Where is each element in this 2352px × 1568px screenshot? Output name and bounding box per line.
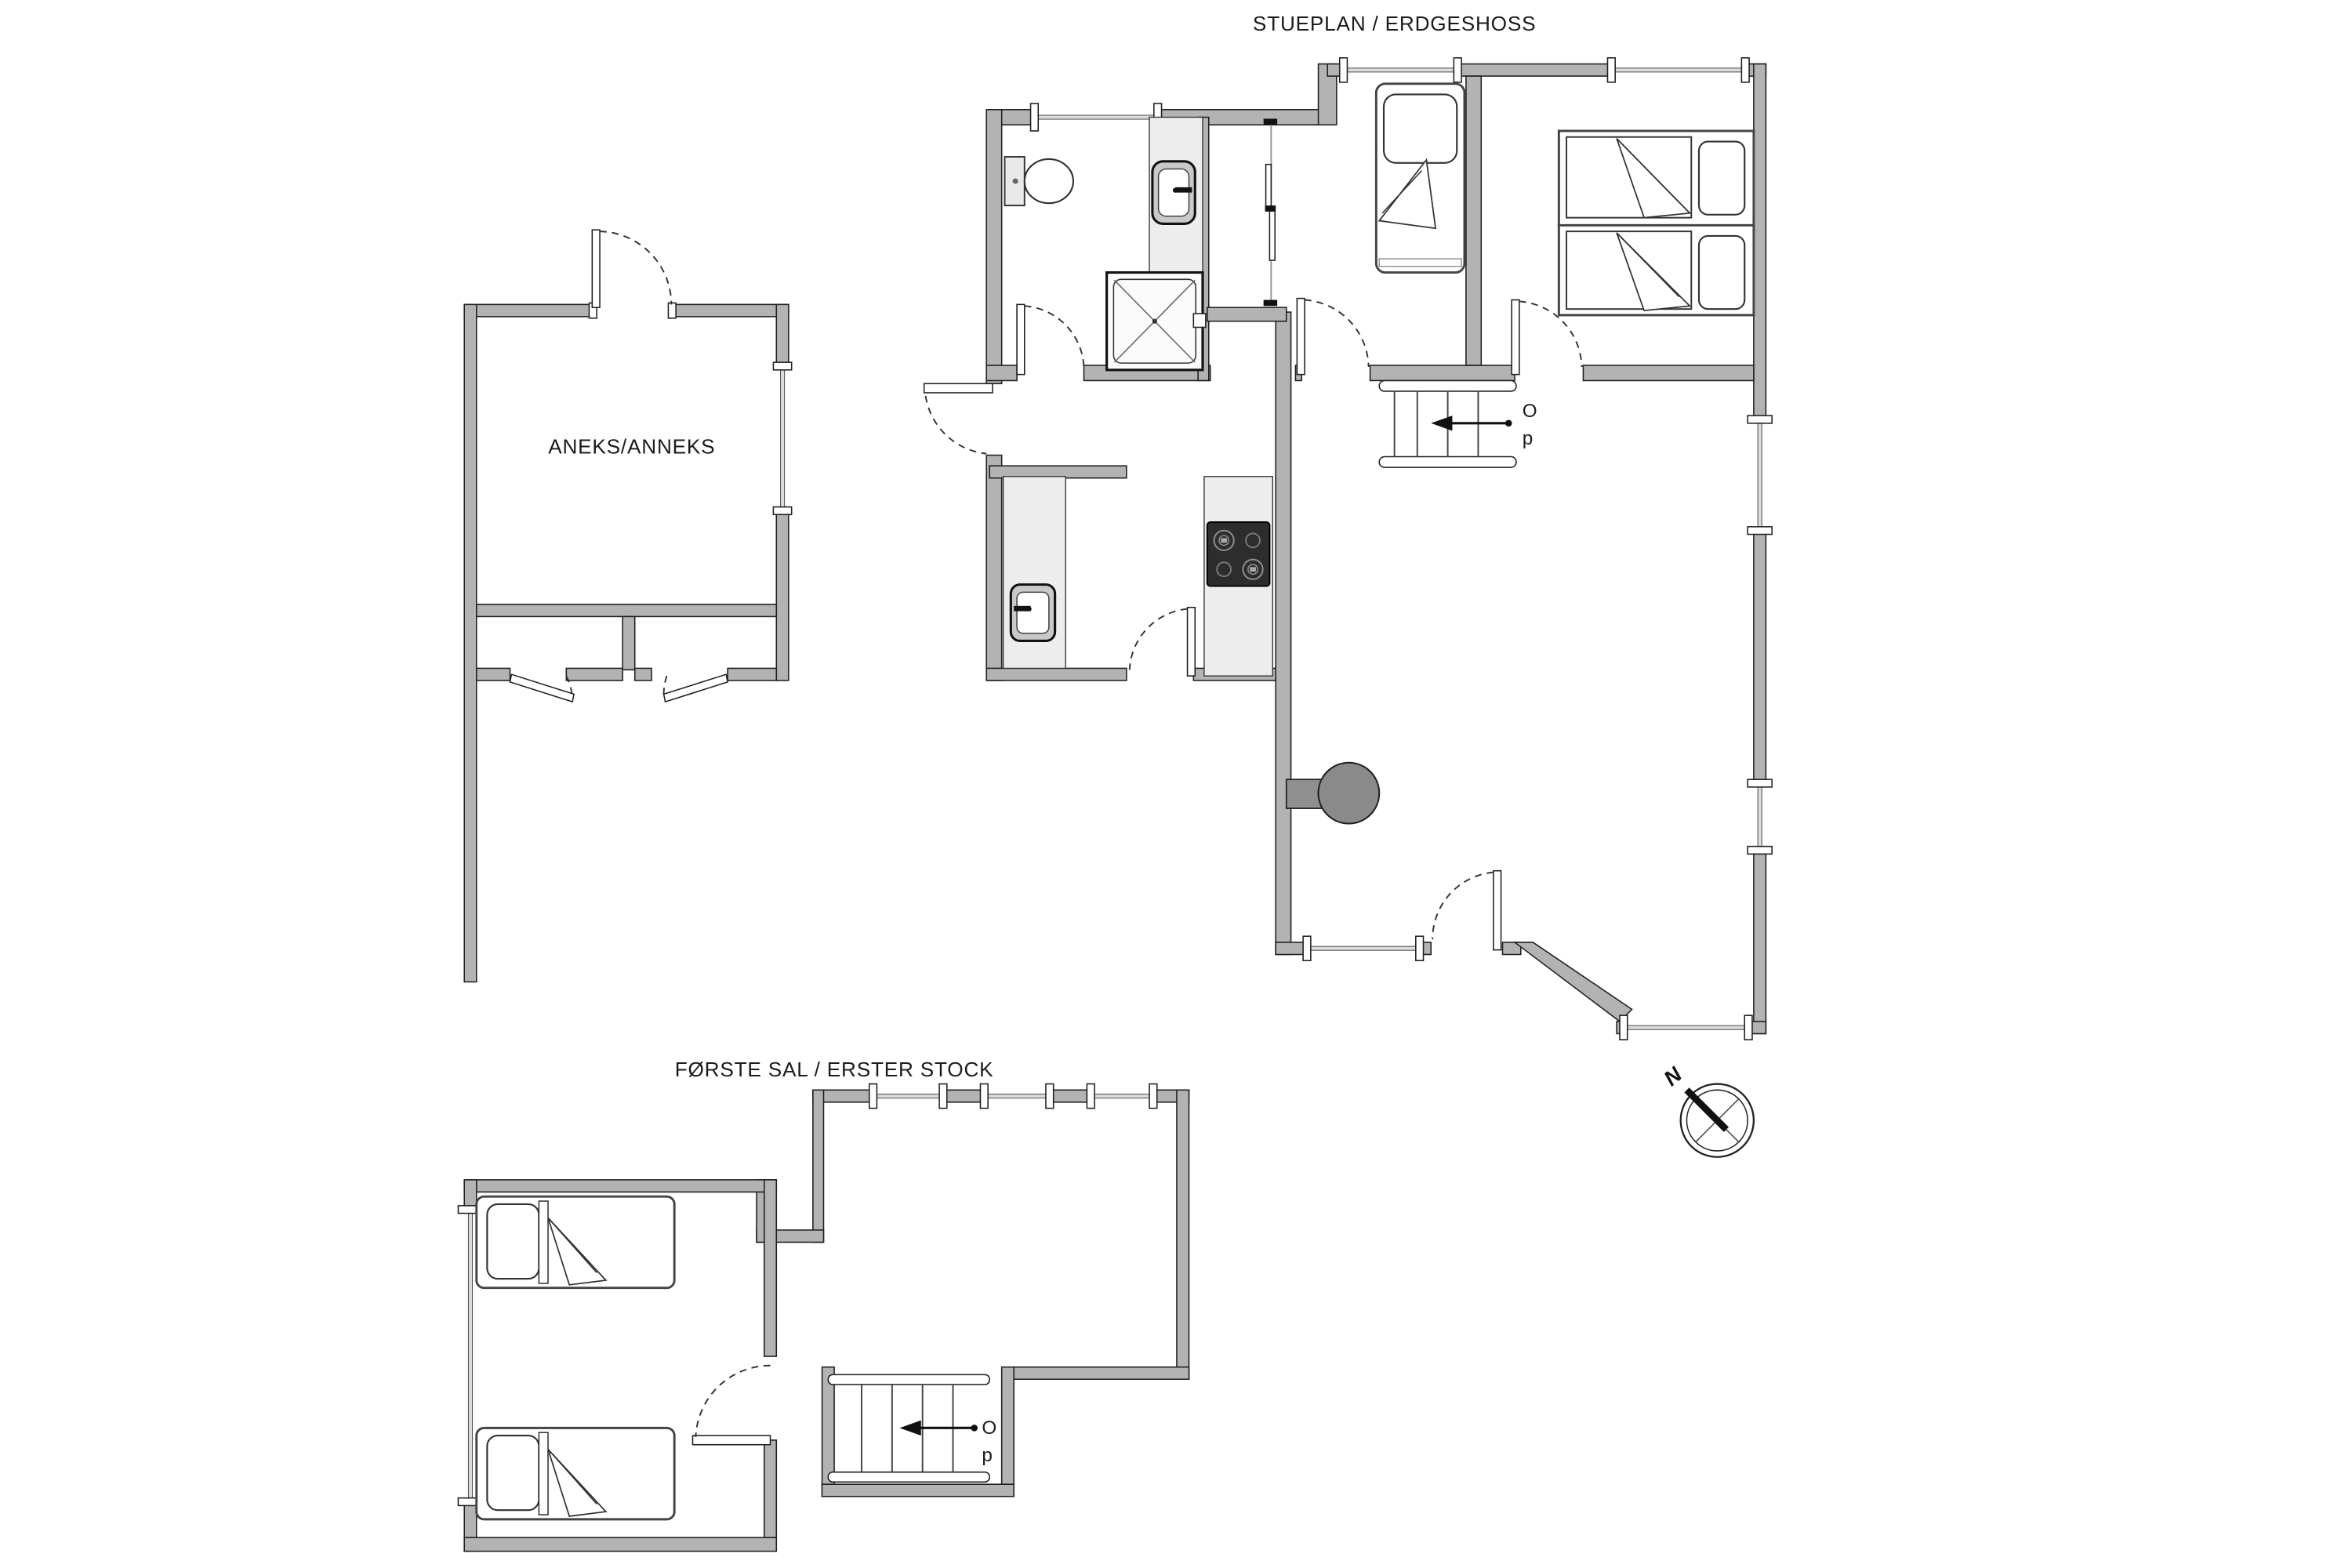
twin-bed-2-symbol	[1559, 225, 1754, 315]
floor-plan-drawing: STUEPLAN / ERDGESHOSS FØRSTE SAL / ERSTE…	[0, 0, 2352, 1568]
sliding-door-symbol	[1264, 118, 1277, 306]
first-floor-title: FØRSTE SAL / ERSTER STOCK	[675, 1058, 994, 1081]
vanity-sink-symbol	[1149, 118, 1203, 273]
single-bed-symbol	[1376, 84, 1465, 273]
ff-top-window-1	[869, 1084, 947, 1109]
annex-plan: ANEKS/ANNEKS	[464, 230, 791, 982]
bedroom-1-door	[1297, 299, 1368, 375]
annex-label: ANEKS/ANNEKS	[548, 435, 715, 459]
stairs-up-label-gf-o: O	[1523, 401, 1537, 422]
annex-shed-door-left	[510, 674, 574, 702]
floor-plan-page: STUEPLAN / ERDGESHOSS FØRSTE SAL / ERSTE…	[0, 0, 2352, 1568]
staircase-first-floor: O p	[828, 1374, 996, 1482]
annex-shed-door-right	[664, 674, 728, 702]
shower-symbol	[1107, 273, 1206, 370]
bedroom-window-2	[1607, 58, 1749, 82]
kitchen-sink-symbol	[1011, 585, 1054, 641]
south-window	[1303, 936, 1423, 960]
ff-bed-1-symbol	[477, 1196, 674, 1288]
east-window-1	[1748, 416, 1772, 534]
kitchen-door	[1130, 608, 1195, 676]
cooktop-symbol	[1207, 522, 1270, 586]
annex-door	[589, 230, 676, 318]
compass-north-label: N	[1659, 1062, 1687, 1091]
bathroom-window	[1031, 103, 1162, 131]
first-floor-plan: O p	[458, 1084, 1189, 1552]
terrace-door-south	[1432, 871, 1501, 950]
wood-stove-symbol	[1287, 763, 1379, 824]
twin-bed-1-symbol	[1559, 131, 1754, 225]
entrance-door-west	[924, 383, 993, 453]
south-east-window	[1620, 1015, 1752, 1040]
bedroom-window-1	[1340, 58, 1461, 82]
ground-floor-plan: O p	[924, 58, 1773, 1040]
stairs-up-label-gf-p: p	[1523, 428, 1534, 449]
toilet-symbol	[1005, 157, 1073, 205]
compass-rose: N	[1659, 1062, 1754, 1157]
stairs-up-label-ff-p: p	[982, 1445, 993, 1466]
ground-floor-title: STUEPLAN / ERDGESHOSS	[1253, 12, 1536, 35]
east-window-2	[1748, 779, 1772, 854]
bathroom-door	[1017, 304, 1083, 374]
ff-bed-2-symbol	[477, 1428, 674, 1519]
ff-bedroom-door	[692, 1366, 770, 1445]
ff-top-window-3	[1087, 1084, 1156, 1109]
annex-window	[773, 362, 791, 514]
stairs-up-label-ff-o: O	[982, 1417, 996, 1439]
staircase-ground-floor: O p	[1379, 380, 1537, 467]
ff-top-window-2	[980, 1084, 1053, 1109]
